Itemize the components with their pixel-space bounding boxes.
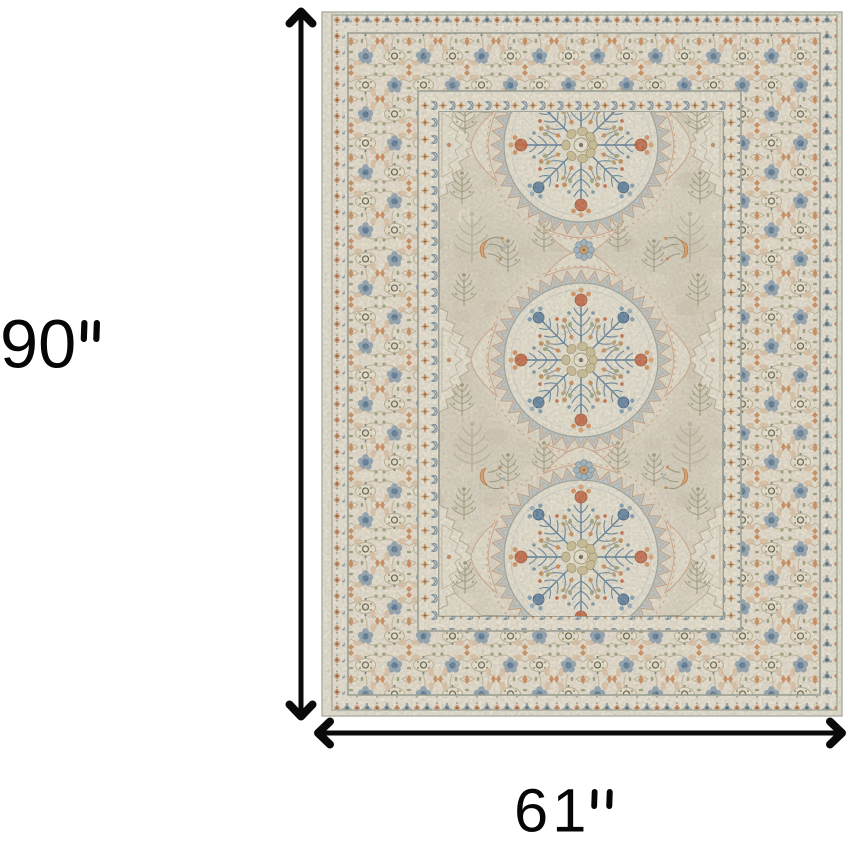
- svg-text:90: 90: [0, 306, 76, 383]
- svg-text:61: 61: [514, 777, 590, 839]
